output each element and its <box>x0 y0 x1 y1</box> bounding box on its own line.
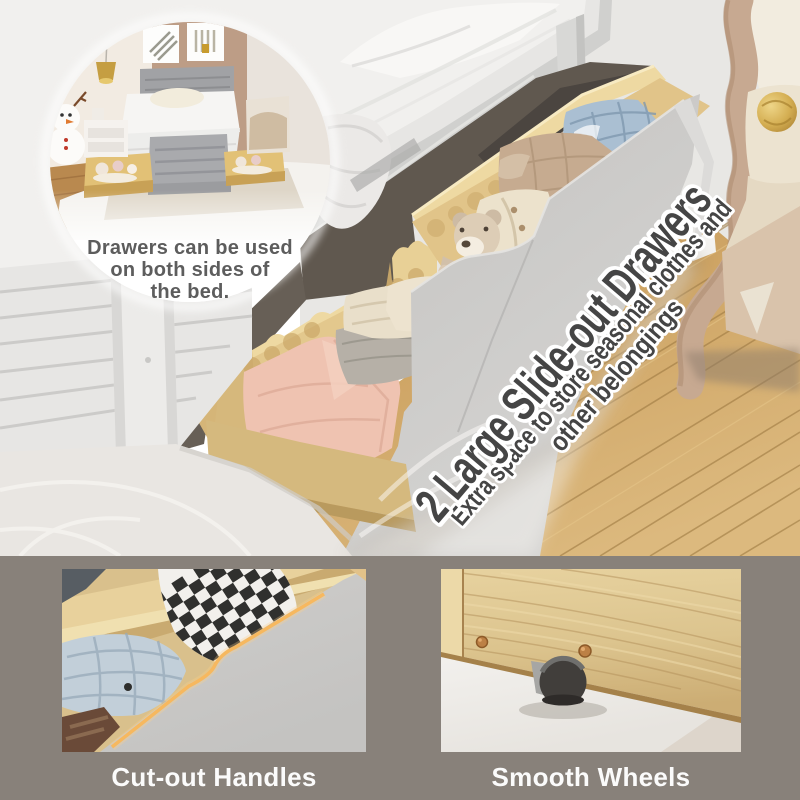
svg-text:the bed.: the bed. <box>150 281 229 303</box>
svg-text:Drawers can be used: Drawers can be used <box>87 237 293 259</box>
svg-text:on both sides of: on both sides of <box>110 259 269 281</box>
